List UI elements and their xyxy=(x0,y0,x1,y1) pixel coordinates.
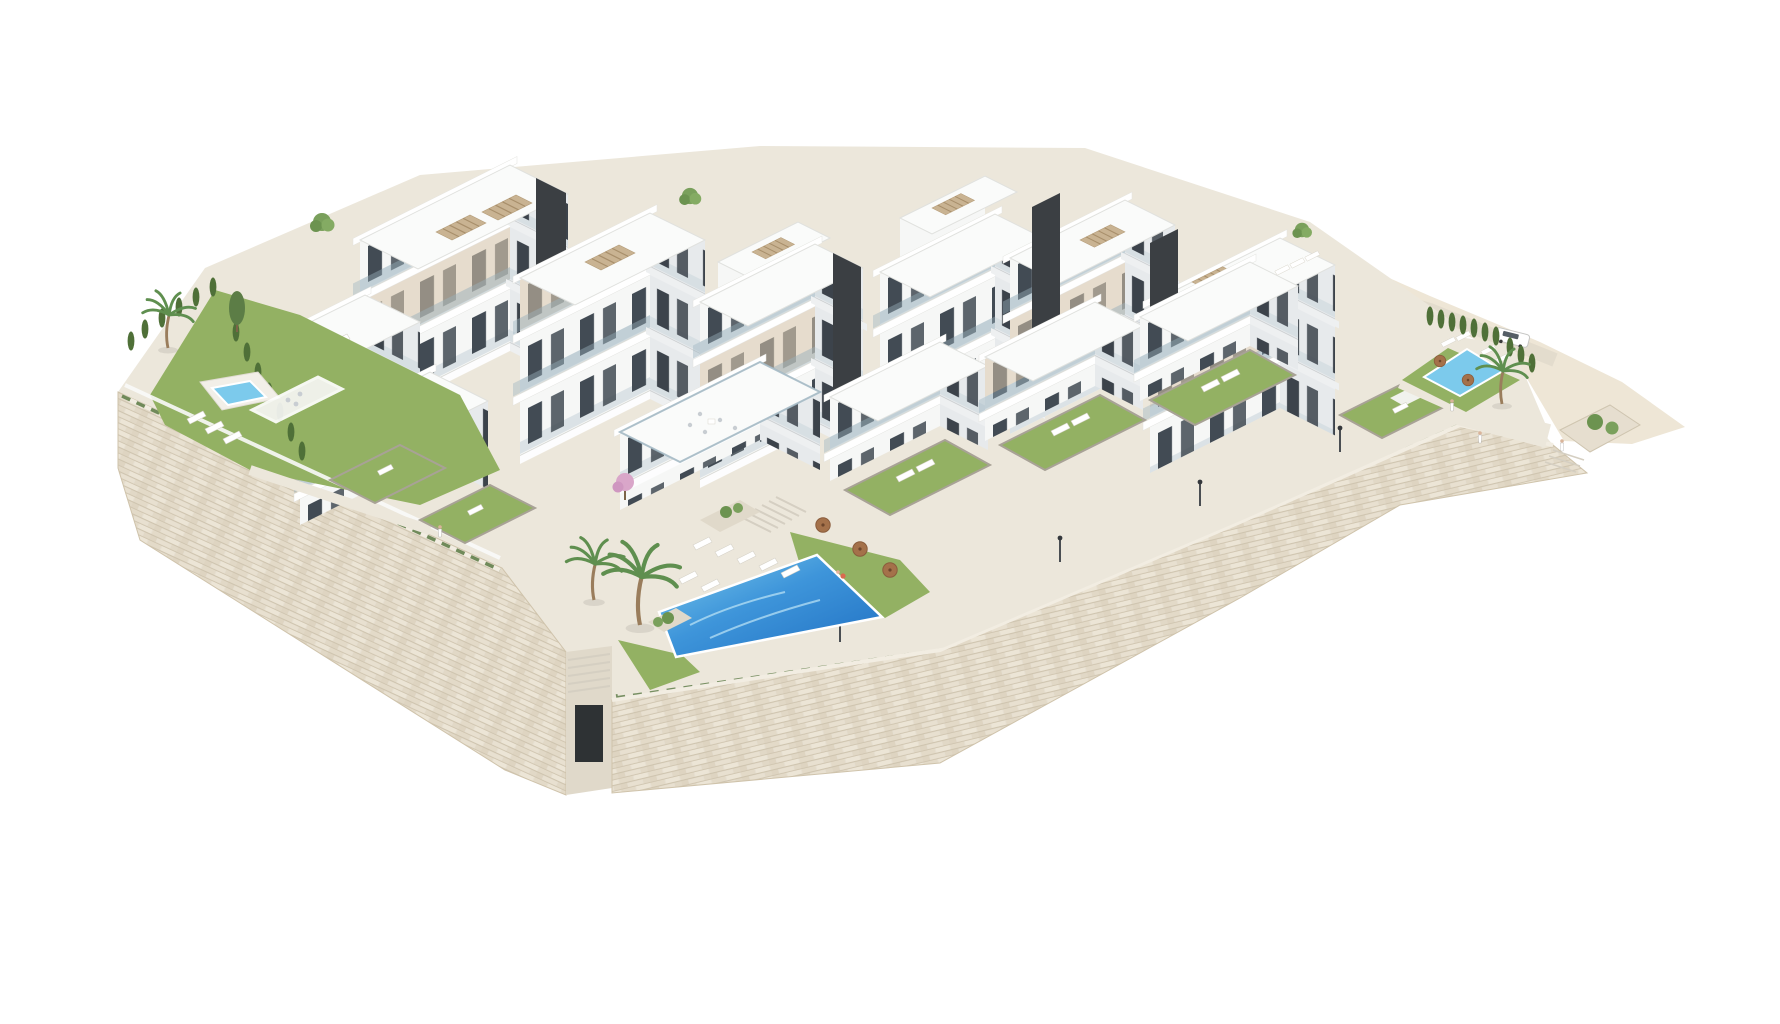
render-canvas xyxy=(0,0,1780,1024)
swimmer xyxy=(840,573,845,578)
architectural-render xyxy=(0,0,1780,1024)
service-door xyxy=(575,705,603,762)
planter-shrub xyxy=(1587,414,1603,430)
planter-shrub xyxy=(1606,422,1619,435)
